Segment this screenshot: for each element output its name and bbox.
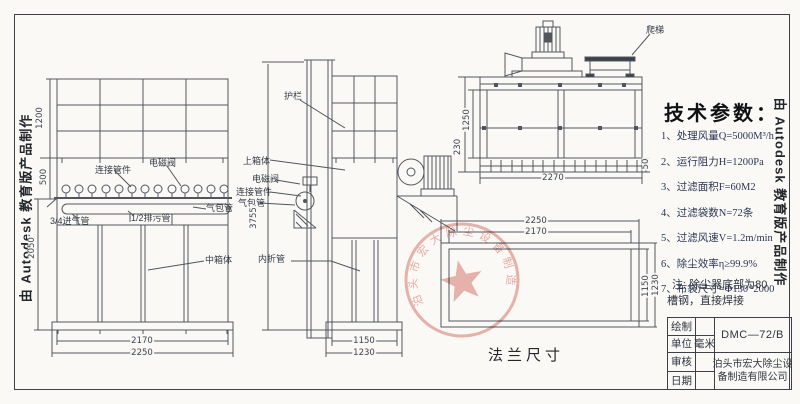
title-block-checked-label: 审核 [668, 352, 695, 371]
front-middle-box-label: 中箱体 [205, 256, 232, 265]
motor-fan-top [505, 21, 582, 77]
flange-dim-2250: 2250 [524, 217, 548, 226]
tech-spec-item: 1、处理风量Q=5000M³/h [661, 128, 800, 143]
tech-spec-item: 5、过滤风速V=1.2m/min [661, 230, 800, 245]
plan-dim-1250: 1250 [463, 108, 472, 132]
ladder-symbol [585, 57, 635, 77]
solenoid-valve-row [62, 185, 228, 198]
plan-dim-2270: 2270 [541, 174, 565, 183]
company-name-line-2: 备制造有限公司 [718, 371, 788, 384]
tech-specs-title: 技术参数： [664, 97, 779, 126]
autodesk-watermark-left: 由 Autodesk 教育版产品制作 [16, 114, 35, 302]
side-inner-pipe-label: 内折管 [258, 255, 285, 264]
note-line-1: 注: 除尘器底部为80 [672, 277, 767, 293]
pulse-valve-assembly [294, 177, 317, 228]
side-dim-3755: 3755 [250, 206, 259, 230]
title-block-divider [695, 318, 696, 389]
title-block-date-label: 日期 [668, 371, 695, 390]
flange-view-title: 法兰尺寸 [488, 344, 564, 365]
front-drain-pipe-label: 1/2排污管 [131, 214, 171, 223]
tech-spec-item: 2、运行阻力H=1200Pa [661, 154, 800, 169]
drawing-note: 注: 除尘器底部为80 槽钢，直接焊接 [672, 277, 767, 309]
drawing-sheet: 泊头市宏大除尘设备制造有限公司 由 Autodesk 教育版产品制作 由 Aut… [0, 0, 800, 404]
front-solenoid-label: 电磁阀 [149, 159, 176, 168]
plan-view-drawing [458, 21, 650, 184]
company-stamp: 泊头市宏大除尘设备制造有限公司 [385, 203, 539, 357]
front-air-bag-label: 气包管 [206, 204, 233, 213]
front-connector-label: 连接管件 [95, 166, 131, 175]
title-block: 绘制 单位 审核 日期 毫米 DMC—72/B 泊头市宏大除尘设 备制造有限公司 [667, 317, 792, 390]
front-dim-1200: 1200 [36, 106, 45, 130]
company-name: 泊头市宏大除尘设 备制造有限公司 [714, 352, 791, 390]
side-dim-1230: 1230 [352, 349, 376, 358]
plan-dim-50: 50 [642, 158, 651, 171]
front-dim-500: 500 [40, 168, 49, 186]
side-guardrail-label: 护栏 [284, 92, 302, 101]
title-block-unit-value: 毫米 [695, 335, 714, 352]
base-channel [52, 322, 233, 330]
flange-dim-2170: 2170 [524, 228, 548, 237]
flange-dim-1230: 1230 [652, 273, 661, 297]
front-dim-2170: 2170 [130, 337, 154, 346]
front-inlet-pipe-label: 3/4进气管 [50, 217, 90, 226]
stamp-star-icon [437, 256, 486, 304]
tech-spec-item: 3、过滤面积F=60M2 [661, 179, 800, 194]
title-block-unit-label: 单位 [668, 335, 695, 352]
side-solenoid-label: 电磁阀 [252, 175, 279, 184]
note-line-2: 槽钢，直接焊接 [667, 293, 767, 309]
title-block-drawn-label: 绘制 [668, 318, 695, 335]
company-name-line-1: 泊头市宏大除尘设 [713, 358, 793, 371]
plan-dim-230: 230 [454, 138, 463, 156]
side-dim-1150: 1150 [352, 337, 376, 346]
side-connector-label: 连接管件 [236, 188, 272, 197]
front-dim-2050: 2050 [28, 236, 37, 260]
tech-spec-item: 6、除尘效率η≥99.9% [661, 256, 800, 271]
tech-spec-item: 4、过滤袋数N=72条 [661, 205, 800, 220]
model-number: DMC—72/B [714, 318, 791, 352]
flange-dim-1150: 1150 [642, 274, 651, 298]
front-dim-2250: 2250 [130, 349, 154, 358]
side-upper-box-label: 上箱体 [243, 157, 270, 166]
plan-ladder-label: 爬梯 [646, 26, 664, 35]
